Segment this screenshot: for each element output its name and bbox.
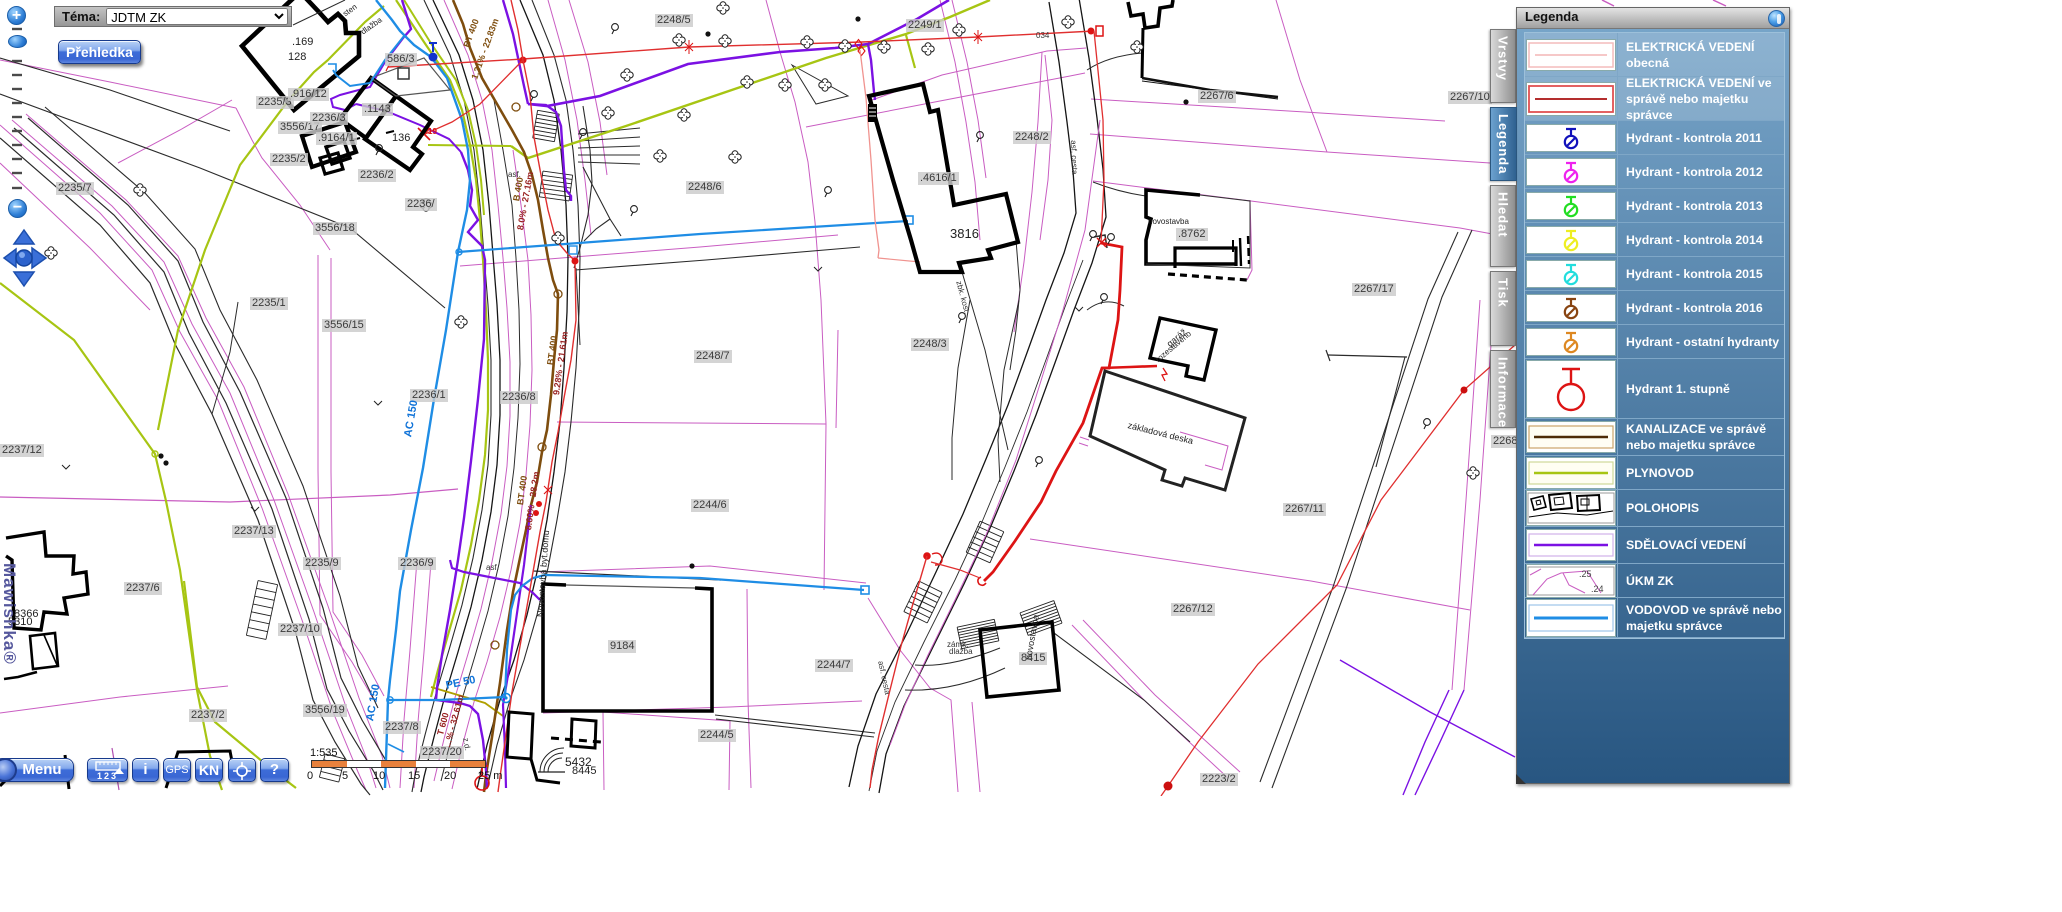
svg-text:.24: .24 [1591,584,1604,594]
svg-text:.25: .25 [1579,569,1592,579]
